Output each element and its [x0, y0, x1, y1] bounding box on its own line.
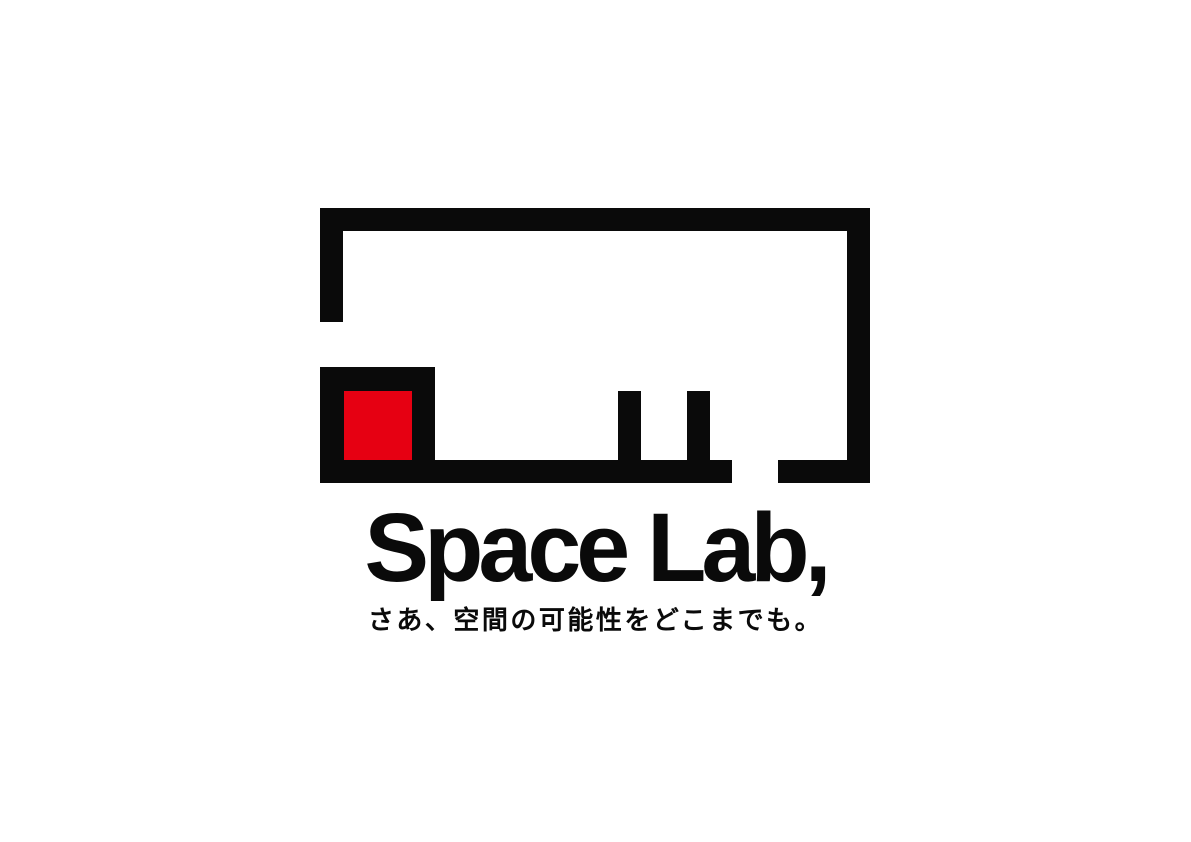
mark-bottom-wall-left: [435, 460, 732, 483]
mark-corner-block: [320, 367, 435, 483]
mark-left-wall: [320, 208, 343, 322]
red-accent-square: [344, 391, 412, 460]
mark-bottom-wall-right: [778, 460, 870, 483]
mark-right-wall: [847, 208, 870, 483]
logo-page: Space Lab, さあ、空間の可能性をどこまでも。: [0, 0, 1191, 842]
mark-top-wall: [320, 208, 870, 231]
mark-wall-stub-1: [618, 391, 641, 460]
mark-wall-stub-2: [687, 391, 710, 460]
tagline: さあ、空間の可能性をどこまでも。: [0, 604, 1191, 636]
floorplan-logo-mark: [320, 208, 870, 483]
wordmark: Space Lab,: [0, 499, 1191, 596]
